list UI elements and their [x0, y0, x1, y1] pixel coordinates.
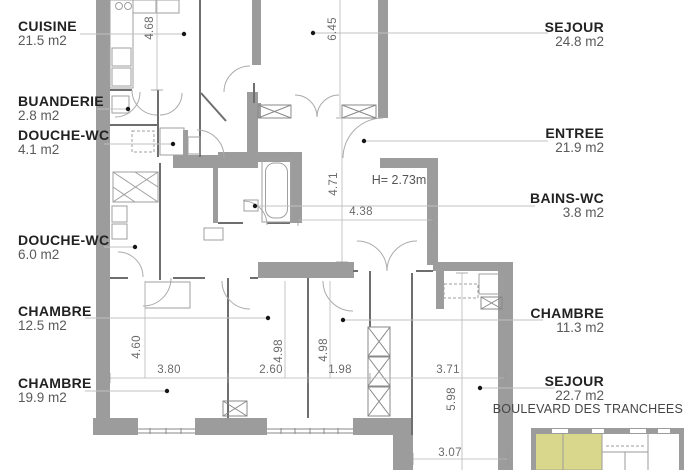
room-name: CHAMBRE [530, 307, 604, 320]
radiator-icon [223, 401, 247, 416]
leader-dot [341, 318, 345, 322]
wall-hall-south [258, 262, 354, 278]
room-name: BAINS-WC [530, 192, 604, 205]
wall-south-pier-1 [93, 418, 138, 435]
room-name: DOUCHE-WC [18, 234, 109, 247]
wall-bains-east [290, 152, 302, 223]
room-area: 3.8 m2 [530, 206, 604, 220]
fixtures [110, 0, 502, 308]
street-label: BOULEVARD DES TRANCHEES [493, 402, 683, 416]
room-label-cuisine: CUISINE 21.5 m2 [18, 20, 77, 48]
room-area: 11.3 m2 [530, 321, 604, 335]
dimension-4-38: 4.38 [349, 206, 373, 218]
room-name: SEJOUR [545, 375, 604, 388]
room-area: 6.0 m2 [18, 248, 109, 262]
wall-left [96, 0, 110, 433]
room-name: CHAMBRE [18, 305, 92, 318]
dimension-4-68: 4.68 [144, 16, 156, 40]
shelf [112, 206, 127, 222]
door-arc-sej22-left [357, 241, 387, 271]
room-label-sejour-248: SEJOUR 24.8 m2 [545, 21, 604, 49]
room-label-bains-wc: BAINS-WC 3.8 m2 [530, 192, 604, 220]
keyplan-window-gap [552, 429, 568, 433]
wall-entree-south [433, 262, 513, 271]
kitchen-cabinet [112, 68, 131, 86]
shower-douche6 [113, 172, 158, 202]
dimension-4-71: 4.71 [328, 172, 340, 196]
dimension-4-98-b: 4.98 [318, 338, 330, 362]
wall-south-pier-3 [353, 418, 413, 435]
dimension-1-98: 1.98 [328, 364, 352, 376]
room-area: 12.5 m2 [18, 319, 92, 333]
leader-dot [266, 316, 270, 320]
door-arc-french-left [295, 95, 317, 117]
leader-dot [253, 204, 257, 208]
dimension-4-98-a: 4.98 [273, 339, 285, 363]
door-arc-sejour-west [224, 66, 250, 92]
room-area: 21.9 m2 [545, 141, 604, 155]
room-area: 4.1 m2 [18, 143, 109, 157]
room-name: BUANDERIE [18, 95, 104, 108]
door-arc-french-right [317, 95, 339, 117]
keyplan-highlight [534, 432, 602, 470]
wall-entree-top [380, 158, 433, 168]
room-area: 24.8 m2 [545, 35, 604, 49]
room-label-douche-wc-60: DOUCHE-WC 6.0 m2 [18, 234, 109, 262]
leader-dot [362, 139, 366, 143]
wall-sejour-right [378, 0, 388, 118]
wc-hall [204, 228, 223, 240]
wall-bains-top [218, 152, 302, 162]
kitchen-cabinet [112, 48, 131, 66]
dimension-2-60: 2.60 [259, 364, 283, 376]
sink-bowl-icon [125, 3, 132, 10]
room-area: 22.7 m2 [545, 389, 604, 403]
room-label-sejour-227: SEJOUR 22.7 m2 [545, 375, 604, 403]
keyplan-wall-left [531, 428, 536, 470]
leader-dot [133, 245, 137, 249]
dimension-3-80: 3.80 [157, 364, 181, 376]
door-arc-entrance [343, 118, 383, 158]
leader-dot [478, 386, 482, 390]
door-arc-douche6 [118, 252, 143, 277]
partition-hall-chamfer [201, 93, 226, 121]
kitchen-counter [110, 0, 133, 88]
leader-dot [311, 31, 315, 35]
leader-dot [126, 107, 130, 111]
room-name: CUISINE [18, 20, 77, 33]
floor-plan-page: CUISINE 21.5 m2 BUANDERIE 2.8 m2 DOUCHE-… [0, 0, 700, 470]
leader-dot [182, 32, 186, 36]
closet-ch19 [145, 282, 190, 308]
room-area: 21.5 m2 [18, 34, 77, 48]
shelf [112, 224, 127, 239]
dimension-3-07: 3.07 [438, 447, 462, 459]
room-name: SEJOUR [545, 21, 604, 34]
door-arc-ch11 [323, 281, 353, 311]
bathtub-inner [266, 163, 288, 218]
sink-bowl-icon [116, 3, 123, 10]
door-arc-douche4 [160, 93, 182, 115]
room-name: ENTREE [545, 127, 604, 140]
wall-sejour-left [252, 0, 261, 65]
dimension-6-45: 6.45 [327, 17, 339, 41]
room-label-chambre-113: CHAMBRE 11.3 m2 [530, 307, 604, 335]
machine-dashed [132, 131, 154, 152]
keyplan-wall-right [679, 428, 684, 470]
room-label-douche-wc-41: DOUCHE-WC 4.1 m2 [18, 129, 109, 157]
wall-mid-3 [213, 163, 218, 223]
duct-icon [368, 327, 390, 356]
ceiling-height-note: H= 2.73m [372, 173, 427, 187]
door-arc-kitchen [132, 90, 157, 115]
keyplan-window-gap [630, 429, 646, 433]
dimension-4-60: 4.60 [131, 335, 143, 359]
door-arc-sej22-right [387, 241, 417, 271]
shower-tray-douche4 [160, 128, 184, 155]
door-arc-ch12 [222, 281, 250, 309]
wc-douche4 [188, 137, 200, 154]
room-label-entree: ENTREE 21.9 m2 [545, 127, 604, 155]
room-label-chambre-199: CHAMBRE 19.9 m2 [18, 377, 92, 405]
wall-hall-east [247, 92, 258, 155]
room-name: DOUCHE-WC [18, 129, 109, 142]
duct-icon [368, 357, 390, 386]
room-label-chambre-125: CHAMBRE 12.5 m2 [18, 305, 92, 333]
room-area: 2.8 m2 [18, 109, 104, 123]
keyplan-window-gap [658, 429, 670, 433]
wall-south-pier-2 [195, 418, 267, 435]
room-label-buanderie: BUANDERIE 2.8 m2 [18, 95, 104, 123]
room-name: CHAMBRE [18, 377, 92, 390]
dimension-3-71: 3.71 [436, 364, 460, 376]
dimension-5-98: 5.98 [446, 387, 458, 411]
wall-sejour22-stub [436, 271, 444, 309]
duct-icon [368, 387, 390, 416]
key-plan [531, 428, 684, 470]
wall-south-step [393, 435, 413, 470]
leader-dot [165, 389, 169, 393]
radiator-icon [258, 105, 291, 118]
bathtub [262, 159, 291, 222]
keyplan-window-gap [592, 429, 604, 433]
wardrobe-dashed [444, 284, 478, 298]
wall-entree-east [427, 158, 438, 265]
radiator-icon [342, 105, 376, 118]
leader-dot [171, 142, 175, 146]
room-area: 19.9 m2 [18, 391, 92, 405]
